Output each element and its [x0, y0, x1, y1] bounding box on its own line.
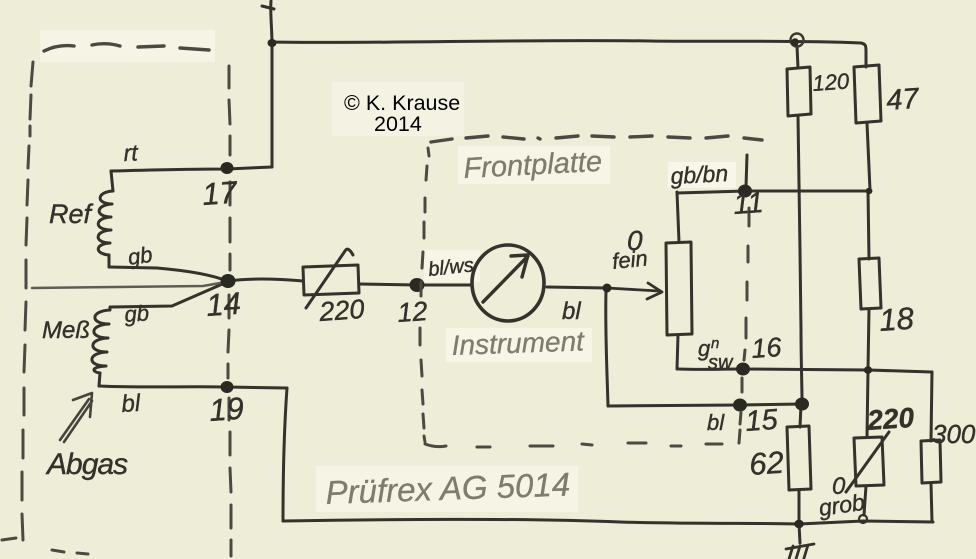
svg-text:gb: gb: [124, 300, 150, 327]
svg-text:47: 47: [885, 83, 921, 117]
svg-text:300: 300: [932, 419, 976, 449]
svg-text:15: 15: [744, 404, 779, 438]
svg-text:Meß: Meß: [42, 317, 90, 344]
svg-text:12: 12: [396, 296, 428, 328]
svg-text:220: 220: [317, 294, 365, 327]
svg-text:gb: gb: [126, 242, 154, 270]
svg-text:220: 220: [865, 402, 915, 436]
svg-text:Ref: Ref: [49, 199, 94, 229]
svg-text:16: 16: [750, 332, 783, 364]
svg-text:11: 11: [732, 187, 764, 221]
svg-text:2014: 2014: [374, 112, 422, 136]
svg-text:fein: fein: [611, 245, 649, 274]
svg-text:n: n: [711, 335, 719, 352]
svg-text:19: 19: [208, 391, 245, 428]
svg-text:14: 14: [205, 286, 242, 323]
svg-text:18: 18: [878, 301, 916, 338]
svg-text:17: 17: [201, 175, 240, 212]
svg-text:bl: bl: [562, 298, 581, 325]
svg-text:62: 62: [748, 445, 785, 482]
svg-text:gb/bn: gb/bn: [670, 160, 729, 189]
svg-text:bl: bl: [121, 390, 142, 418]
svg-text:Abgas: Abgas: [45, 448, 128, 481]
svg-text:Instrument: Instrument: [451, 325, 585, 361]
svg-text:120: 120: [812, 68, 851, 96]
svg-text:sw: sw: [708, 352, 734, 374]
svg-text:bl: bl: [707, 410, 725, 435]
